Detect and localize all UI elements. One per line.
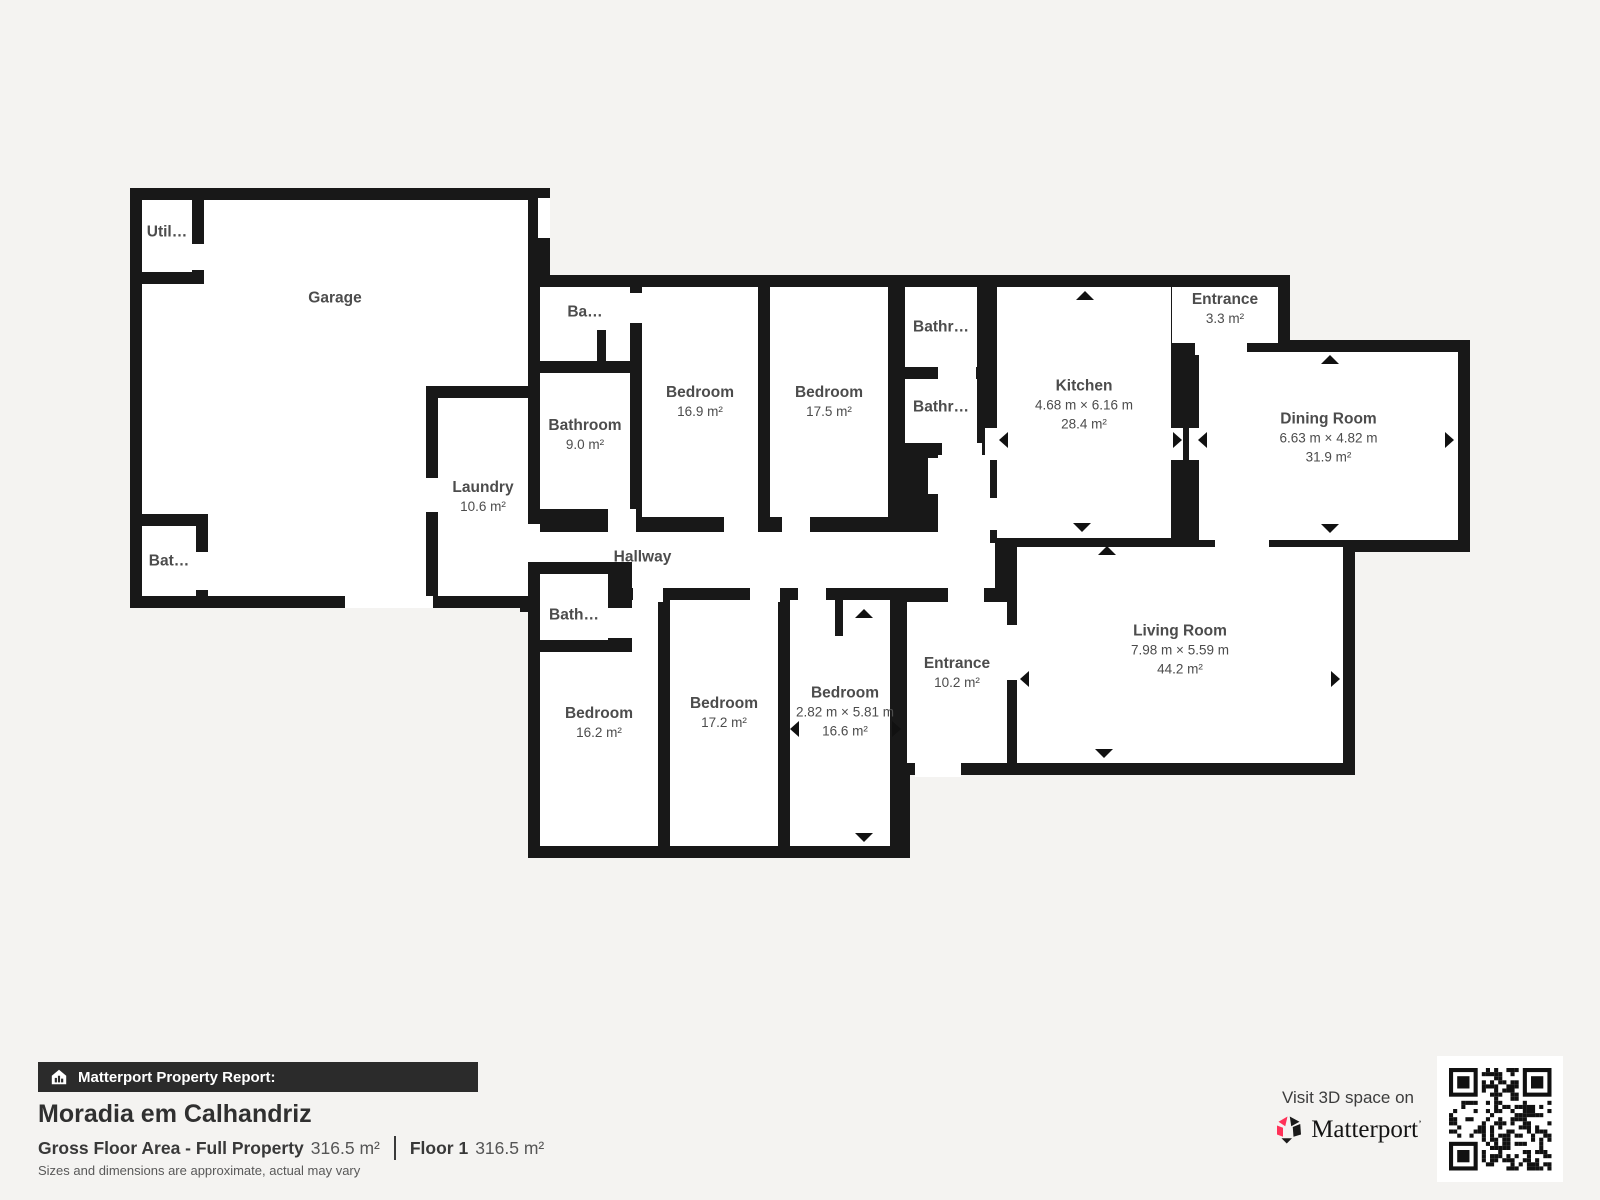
visit-3d-promo: Visit 3D space on Matterport’ <box>1248 1088 1448 1145</box>
door-or-window-opening <box>1215 536 1269 554</box>
door-or-window-opening <box>798 584 826 602</box>
door-or-window-opening <box>196 552 208 590</box>
floor-label: Floor 1 <box>410 1138 468 1159</box>
door-or-window-opening <box>915 763 961 777</box>
room-util <box>142 200 192 272</box>
room-bathr <box>905 379 977 443</box>
room-area <box>938 455 990 543</box>
matterport-mark-icon <box>1274 1115 1304 1145</box>
door-or-window-opening <box>942 443 982 455</box>
door-direction-arrow <box>1198 432 1207 448</box>
door-or-window-opening <box>750 584 780 602</box>
door-or-window-opening <box>192 244 204 270</box>
floorplan-canvas: GarageUtil…Bat…Laundry10.6 m²Ba…Bathroom… <box>0 0 1600 1200</box>
room-bath <box>540 574 608 640</box>
qr-code <box>1437 1056 1563 1182</box>
room-bat <box>142 526 196 596</box>
door-or-window-opening <box>1007 625 1017 680</box>
visit-3d-text: Visit 3D space on <box>1248 1088 1448 1108</box>
door-or-window-opening <box>938 367 976 379</box>
door-direction-arrow <box>1020 671 1029 687</box>
door-direction-arrow <box>1173 432 1182 448</box>
door-or-window-opening <box>528 524 540 562</box>
disclaimer-text: Sizes and dimensions are approximate, ac… <box>38 1163 360 1178</box>
matterport-logo: Matterport’ <box>1248 1115 1448 1145</box>
door-or-window-opening <box>782 517 810 534</box>
door-or-window-opening <box>345 596 433 608</box>
wall-segment <box>597 330 606 361</box>
door-or-window-opening <box>426 478 438 512</box>
door-or-window-opening <box>538 198 550 238</box>
matterport-wordmark: Matterport’ <box>1311 1116 1422 1144</box>
door-or-window-opening <box>928 458 940 494</box>
door-direction-arrow <box>855 609 873 618</box>
area-stats: Gross Floor Area - Full Property 316.5 m… <box>38 1136 544 1160</box>
property-title: Moradia em Calhandriz <box>38 1100 312 1129</box>
door-or-window-opening <box>948 584 984 604</box>
door-or-window-opening <box>1195 343 1247 355</box>
door-direction-arrow <box>1321 524 1339 533</box>
room-laundry <box>438 398 528 596</box>
door-direction-arrow <box>1076 291 1094 300</box>
room-bathr <box>905 287 977 367</box>
room-livingroom <box>1017 547 1343 763</box>
door-or-window-opening <box>985 498 997 530</box>
banner-label: Matterport Property Report: <box>78 1069 276 1086</box>
room-ba <box>540 287 630 361</box>
door-direction-arrow <box>1095 749 1113 758</box>
house-chart-icon <box>50 1068 68 1086</box>
door-direction-arrow <box>1073 523 1091 532</box>
door-direction-arrow <box>1331 671 1340 687</box>
room-diningroom <box>1199 352 1458 540</box>
room-bedroom <box>642 287 758 517</box>
report-banner: Matterport Property Report: <box>38 1062 478 1092</box>
room-bedroom <box>770 287 888 517</box>
door-or-window-opening <box>608 509 636 533</box>
room-entrance <box>1172 287 1278 343</box>
door-or-window-opening <box>630 293 642 323</box>
door-or-window-opening <box>985 428 997 460</box>
door-direction-arrow <box>892 721 901 737</box>
door-direction-arrow <box>855 833 873 842</box>
door-direction-arrow <box>1445 432 1454 448</box>
room-kitchen <box>997 287 1171 538</box>
door-or-window-opening <box>633 584 663 602</box>
door-direction-arrow <box>1321 355 1339 364</box>
room-bedroom <box>670 600 778 846</box>
stats-divider <box>394 1136 396 1160</box>
room-entrance <box>907 602 1007 763</box>
wall-segment <box>835 600 843 636</box>
room-bedroom <box>790 600 890 846</box>
door-direction-arrow <box>999 432 1008 448</box>
gross-area-label: Gross Floor Area - Full Property <box>38 1138 304 1159</box>
room-bathroom <box>540 373 630 509</box>
gross-area-value: 316.5 m² <box>311 1138 380 1159</box>
door-direction-arrow <box>1098 546 1116 555</box>
door-direction-arrow <box>790 721 799 737</box>
room-area <box>935 543 995 588</box>
door-or-window-opening <box>724 517 758 534</box>
floor-value: 316.5 m² <box>475 1138 544 1159</box>
door-or-window-opening <box>608 608 634 638</box>
